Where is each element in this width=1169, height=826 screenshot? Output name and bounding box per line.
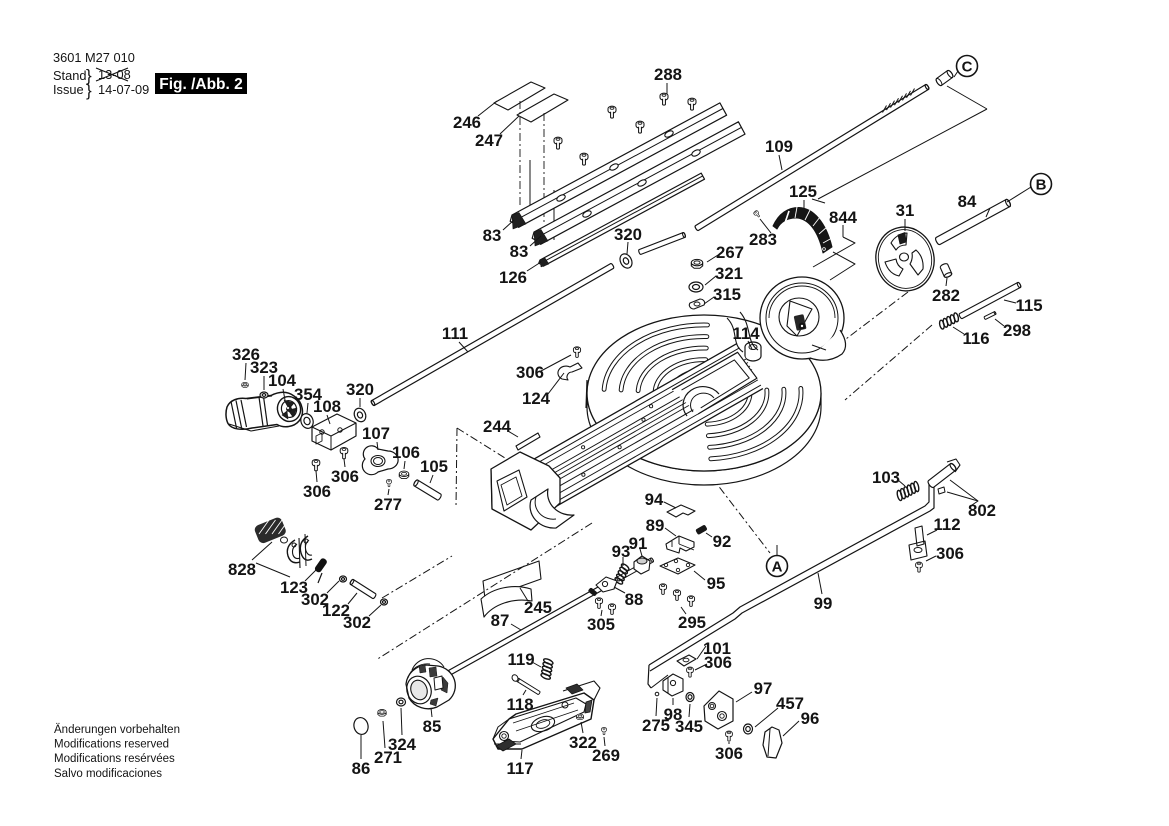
svg-text:114: 114 [732, 324, 760, 343]
svg-text:96: 96 [801, 709, 820, 728]
svg-text:105: 105 [420, 457, 448, 476]
svg-text:118: 118 [506, 695, 533, 714]
svg-text:345: 345 [675, 717, 703, 736]
svg-text:125: 125 [789, 182, 817, 201]
svg-text:306: 306 [516, 363, 544, 382]
svg-text:103: 103 [872, 468, 900, 487]
svg-text:31: 31 [896, 201, 915, 220]
svg-text:}: } [86, 81, 92, 100]
svg-text:14-07-09: 14-07-09 [98, 82, 149, 97]
svg-text:95: 95 [707, 574, 726, 593]
svg-text:Stand: Stand [53, 68, 86, 83]
svg-text:111: 111 [442, 324, 468, 343]
svg-text:302: 302 [343, 613, 371, 632]
svg-text:83: 83 [483, 226, 502, 245]
svg-text:269: 269 [592, 746, 620, 765]
svg-text:116: 116 [962, 329, 989, 348]
svg-text:87: 87 [491, 611, 510, 630]
svg-text:108: 108 [313, 397, 341, 416]
svg-text:320: 320 [614, 225, 642, 244]
svg-text:828: 828 [228, 560, 256, 579]
svg-text:295: 295 [678, 613, 706, 632]
svg-text:306: 306 [331, 467, 359, 486]
svg-text:320: 320 [346, 380, 374, 399]
svg-text:89: 89 [646, 516, 665, 535]
svg-text:85: 85 [423, 717, 442, 736]
svg-text:298: 298 [1003, 321, 1031, 340]
svg-text:321: 321 [715, 264, 743, 283]
svg-text:Issue: Issue [53, 82, 84, 97]
svg-text:306: 306 [303, 482, 331, 501]
svg-text:88: 88 [625, 590, 644, 609]
svg-text:91: 91 [629, 534, 648, 553]
svg-text:275: 275 [642, 716, 670, 735]
svg-text:246: 246 [453, 113, 481, 132]
svg-text:315: 315 [713, 285, 741, 304]
svg-text:94: 94 [645, 490, 664, 509]
svg-text:93: 93 [612, 542, 631, 561]
svg-text:86: 86 [352, 759, 371, 778]
svg-text:Modifications reserved: Modifications reserved [54, 739, 169, 751]
svg-text:267: 267 [716, 243, 744, 262]
svg-text:99: 99 [814, 594, 833, 613]
svg-text:306: 306 [936, 544, 964, 563]
svg-text:282: 282 [932, 286, 960, 305]
svg-text:117: 117 [506, 759, 533, 778]
svg-text:245: 245 [524, 598, 552, 617]
svg-text:104: 104 [268, 371, 297, 390]
svg-text:844: 844 [829, 208, 858, 227]
svg-text:3601 M27 010: 3601 M27 010 [53, 50, 135, 65]
svg-text:306: 306 [704, 653, 732, 672]
svg-text:Modifications resérvées: Modifications resérvées [54, 753, 175, 765]
svg-text:A: A [772, 559, 783, 576]
svg-text:112: 112 [933, 515, 960, 534]
svg-text:Fig. /Abb. 2: Fig. /Abb. 2 [159, 76, 243, 93]
svg-text:124: 124 [522, 389, 551, 408]
svg-text:247: 247 [475, 131, 503, 150]
svg-text:126: 126 [499, 268, 527, 287]
svg-text:109: 109 [765, 137, 793, 156]
svg-text:305: 305 [587, 615, 615, 634]
svg-text:244: 244 [483, 417, 512, 436]
svg-text:271: 271 [374, 748, 402, 767]
svg-text:119: 119 [507, 650, 534, 669]
svg-text:Änderungen vorbehalten: Änderungen vorbehalten [54, 724, 180, 736]
svg-text:306: 306 [715, 744, 743, 763]
svg-text:97: 97 [754, 679, 773, 698]
svg-text:802: 802 [968, 501, 996, 520]
svg-text:277: 277 [374, 495, 402, 514]
svg-text:Salvo modificaciones: Salvo modificaciones [54, 768, 162, 780]
svg-text:107: 107 [362, 424, 390, 443]
svg-text:B: B [1036, 177, 1047, 194]
svg-text:283: 283 [749, 230, 777, 249]
svg-text:84: 84 [958, 192, 977, 211]
svg-text:92: 92 [713, 532, 732, 551]
svg-text:106: 106 [392, 443, 420, 462]
svg-text:288: 288 [654, 65, 682, 84]
svg-text:115: 115 [1015, 296, 1042, 315]
svg-text:83: 83 [510, 242, 529, 261]
svg-text:C: C [962, 59, 973, 76]
